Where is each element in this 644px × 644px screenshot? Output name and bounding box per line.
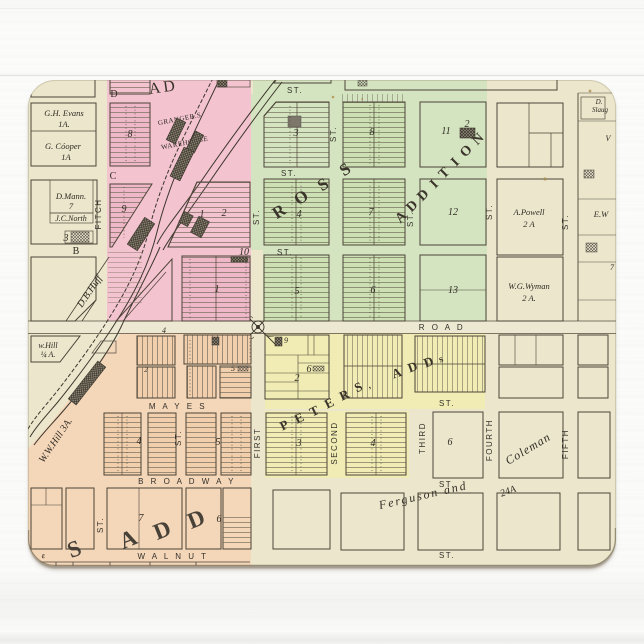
svg-text:2: 2	[295, 373, 300, 384]
svg-text:THIRD: THIRD	[418, 422, 427, 454]
svg-text:w.Hill: w.Hill	[38, 341, 58, 350]
svg-text:2: 2	[144, 366, 148, 374]
svg-text:ST.: ST.	[439, 399, 455, 408]
svg-text:2 A: 2 A	[523, 219, 535, 229]
svg-text:G.H. Evans: G.H. Evans	[44, 108, 84, 118]
svg-text:1: 1	[215, 284, 220, 295]
svg-text:SECOND: SECOND	[330, 421, 339, 464]
svg-text:ST.: ST.	[485, 204, 494, 220]
svg-text:R O A D: R O A D	[419, 323, 465, 332]
svg-text:3: 3	[296, 438, 302, 449]
svg-text:ST.: ST.	[96, 517, 105, 533]
svg-text:ST.: ST.	[439, 551, 455, 560]
svg-text:ST.: ST.	[329, 126, 338, 142]
svg-text:ST.: ST.	[277, 248, 293, 257]
svg-text:W.G.Wyman: W.G.Wyman	[508, 281, 549, 291]
svg-text:9: 9	[284, 336, 288, 345]
svg-text:D.Mann.: D.Mann.	[55, 191, 86, 201]
svg-text:5: 5	[295, 286, 300, 297]
svg-text:ST.: ST.	[287, 86, 303, 95]
svg-text:1A: 1A	[61, 152, 71, 162]
svg-text:FOURTH: FOURTH	[485, 419, 494, 461]
svg-text:13: 13	[448, 285, 458, 296]
svg-text:ST.: ST.	[281, 169, 297, 178]
svg-text:B R O A D W A Y: B R O A D W A Y	[138, 477, 236, 486]
svg-text:E.W: E.W	[593, 209, 609, 219]
svg-text:8: 8	[370, 127, 375, 138]
svg-text:3: 3	[63, 233, 69, 244]
svg-text:G. Cóoper: G. Cóoper	[45, 141, 82, 151]
svg-text:¼ A.: ¼ A.	[41, 350, 56, 359]
svg-text:ST.: ST.	[406, 211, 415, 227]
svg-text:W A L N U T: W A L N U T	[137, 552, 208, 561]
svg-text:C: C	[110, 171, 117, 182]
svg-text:A.Powell: A.Powell	[513, 207, 546, 217]
svg-text:B: B	[73, 246, 80, 257]
svg-text:2 A.: 2 A.	[522, 293, 536, 303]
svg-text:ST.: ST.	[174, 430, 183, 446]
svg-text:4: 4	[371, 438, 376, 449]
svg-text:6: 6	[448, 437, 453, 448]
svg-text:M A Y E S: M A Y E S	[149, 402, 207, 411]
svg-text:FIFTH: FIFTH	[561, 429, 570, 459]
svg-text:1A.: 1A.	[58, 119, 70, 129]
svg-text:3: 3	[293, 128, 299, 139]
svg-text:ST.: ST.	[561, 214, 570, 230]
svg-text:8: 8	[128, 129, 133, 140]
svg-text:12: 12	[448, 207, 458, 218]
svg-text:FITCH: FITCH	[94, 198, 103, 229]
svg-text:6: 6	[307, 364, 312, 375]
svg-text:FIRST: FIRST	[253, 428, 262, 459]
svg-text:D.: D.	[595, 98, 603, 106]
svg-text:4: 4	[162, 326, 166, 335]
svg-text:5: 5	[216, 437, 221, 448]
svg-text:2: 2	[222, 208, 227, 219]
svg-text:6: 6	[217, 514, 222, 525]
svg-text:5: 5	[231, 364, 235, 373]
svg-text:Slaug: Slaug	[592, 106, 608, 114]
svg-text:11: 11	[441, 126, 450, 137]
svg-text:6: 6	[371, 285, 376, 296]
svg-text:J.C.North: J.C.North	[55, 214, 87, 223]
svg-text:ST.: ST.	[252, 209, 261, 225]
svg-text:D: D	[110, 89, 117, 100]
svg-text:4: 4	[137, 436, 142, 447]
